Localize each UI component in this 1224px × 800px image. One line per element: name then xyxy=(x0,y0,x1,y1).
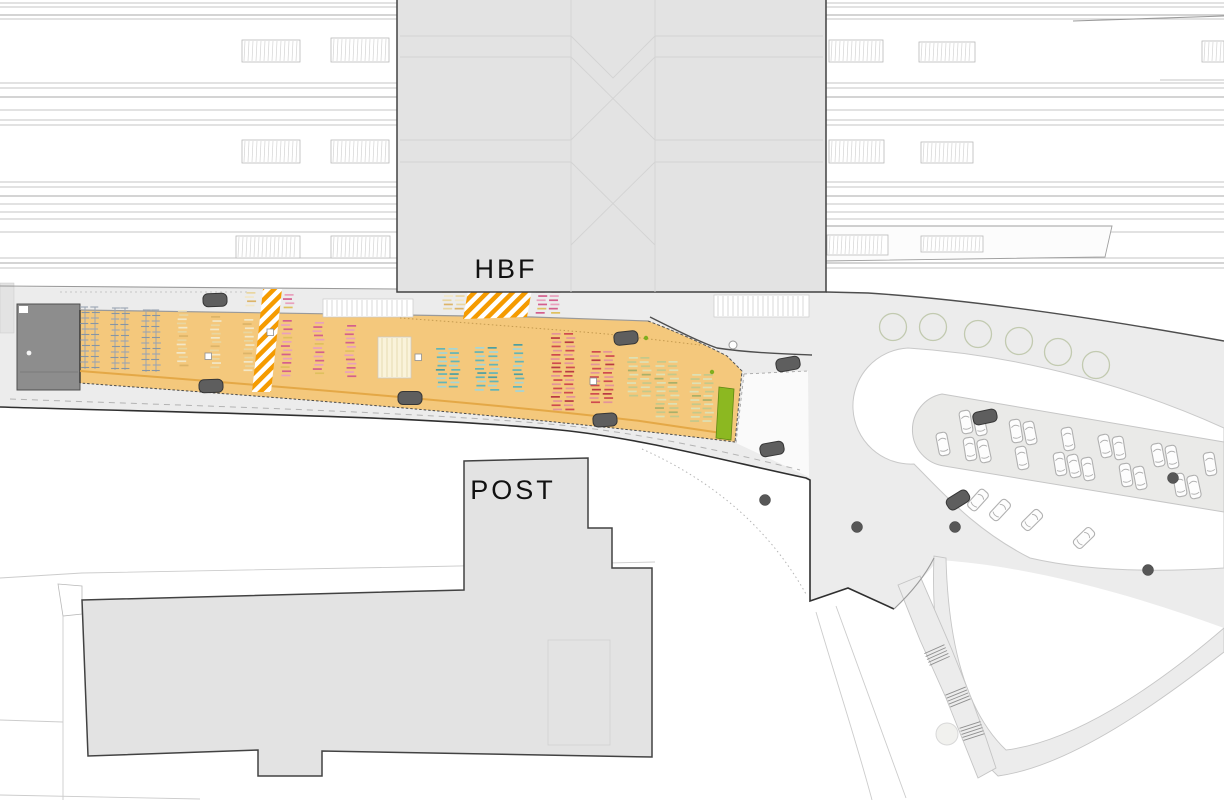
deck-marker xyxy=(205,353,212,360)
deck-marker xyxy=(590,378,597,385)
train-wagon xyxy=(242,40,300,62)
train-wagon xyxy=(331,236,390,258)
car-dark xyxy=(613,330,638,345)
hbf-building: HBF xyxy=(397,0,826,292)
train-wagon xyxy=(827,235,888,255)
hbf-label: HBF xyxy=(475,254,538,284)
car-dark xyxy=(199,379,223,393)
construction-stripe-band xyxy=(463,289,532,319)
site-plan-page: HBF POST xyxy=(0,0,1224,800)
site-plan: HBF POST xyxy=(0,0,1224,800)
south-road-curve-2 xyxy=(836,606,906,798)
train-wagon xyxy=(242,140,300,163)
deck-ring-marker xyxy=(729,341,737,349)
deck-marker xyxy=(267,329,274,336)
stair-tree-pit xyxy=(936,723,958,745)
train-wagon xyxy=(236,236,300,258)
train-wagon xyxy=(829,40,883,62)
car-dark xyxy=(593,413,618,428)
bollard-dot xyxy=(1143,565,1154,576)
deck-marker xyxy=(415,354,422,361)
left-edge-strip xyxy=(0,283,14,333)
train-wagon xyxy=(331,38,389,62)
post-building: POST xyxy=(0,458,655,776)
post-label: POST xyxy=(470,475,556,505)
bollard-dot xyxy=(950,522,961,533)
bollard-dot xyxy=(852,522,863,533)
service-box xyxy=(17,304,80,390)
train-wagon xyxy=(331,140,389,163)
train-wagon xyxy=(1202,41,1224,62)
train-wagon xyxy=(829,140,884,163)
track-diagonal-line xyxy=(1073,16,1224,21)
south-road-curve-1 xyxy=(816,612,872,800)
bollard-dot xyxy=(760,495,771,506)
bollard-dot xyxy=(1168,473,1179,484)
green-strip xyxy=(716,387,734,440)
green-dot xyxy=(644,336,648,340)
car-dark xyxy=(398,392,422,405)
train-wagon xyxy=(919,42,975,62)
bike-group-white xyxy=(714,295,809,317)
train-wagon xyxy=(921,236,983,252)
train-wagon xyxy=(921,142,973,163)
bike-group-white xyxy=(323,299,413,317)
green-dot xyxy=(710,370,714,374)
car-dark xyxy=(203,293,227,307)
bike-group-paleyellow xyxy=(378,337,411,378)
